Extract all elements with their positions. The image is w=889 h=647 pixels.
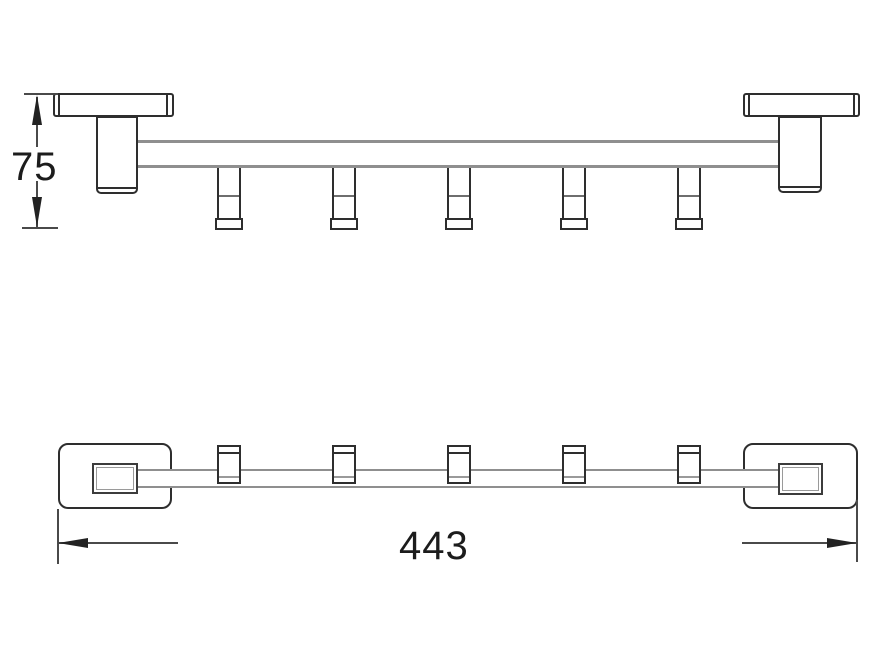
hook-2-top-base-line: [334, 476, 354, 478]
hook-4-top-cap-line: [564, 452, 584, 454]
left-mount-block-top: [92, 463, 138, 494]
hook-4-mid-line: [564, 195, 584, 197]
length-arrow-right-icon: [827, 538, 857, 548]
hook-3-top-base-line: [449, 476, 469, 478]
hook-5-front: [677, 168, 701, 220]
right-post: [778, 116, 822, 193]
length-ext-line-left: [57, 509, 59, 564]
left-wall-flange: [53, 93, 174, 117]
drawing-canvas: 75 443: [0, 0, 889, 647]
right-post-base-line: [780, 186, 820, 188]
hook-3-top-cap-line: [449, 452, 469, 454]
hook-5-cap: [675, 218, 703, 230]
hook-4-front: [562, 168, 586, 220]
height-arrow-up-icon: [32, 95, 42, 125]
hook-1-cap: [215, 218, 243, 230]
hook-5-mid-line: [679, 195, 699, 197]
hook-3-front: [447, 168, 471, 220]
length-ext-line-right: [856, 500, 858, 562]
hook-1-top: [217, 445, 241, 484]
hook-2-top-cap-line: [334, 452, 354, 454]
towel-bar-front: [138, 140, 778, 168]
height-dimension-label: 75: [11, 147, 58, 187]
hook-3-cap: [445, 218, 473, 230]
hook-2-front: [332, 168, 356, 220]
hook-2-top: [332, 445, 356, 484]
right-mount-inner-line: [782, 467, 819, 491]
height-ext-line-bottom: [22, 227, 58, 229]
hook-5-top-cap-line: [679, 452, 699, 454]
right-wall-flange: [743, 93, 860, 117]
hook-3-top: [447, 445, 471, 484]
hook-2-mid-line: [334, 195, 354, 197]
length-arrow-left-icon: [58, 538, 88, 548]
left-post: [96, 116, 138, 194]
hook-2-cap: [330, 218, 358, 230]
left-mount-inner-line: [96, 467, 134, 490]
hook-4-top: [562, 445, 586, 484]
hook-1-mid-line: [219, 195, 239, 197]
hook-3-mid-line: [449, 195, 469, 197]
hook-5-top-base-line: [679, 476, 699, 478]
right-flange-cap-line-right: [853, 95, 855, 115]
hook-1-top-base-line: [219, 476, 239, 478]
left-flange-cap-line-left: [58, 95, 60, 115]
hook-1-top-cap-line: [219, 452, 239, 454]
hook-4-cap: [560, 218, 588, 230]
left-flange-cap-line-right: [166, 95, 168, 115]
height-arrow-down-icon: [32, 197, 42, 227]
left-post-base-line: [98, 187, 136, 189]
hook-4-top-base-line: [564, 476, 584, 478]
hook-1-front: [217, 168, 241, 220]
right-mount-block-top: [778, 463, 823, 495]
length-dimension-label: 443: [399, 526, 469, 566]
right-flange-cap-line-left: [748, 95, 750, 115]
hook-5-top: [677, 445, 701, 484]
